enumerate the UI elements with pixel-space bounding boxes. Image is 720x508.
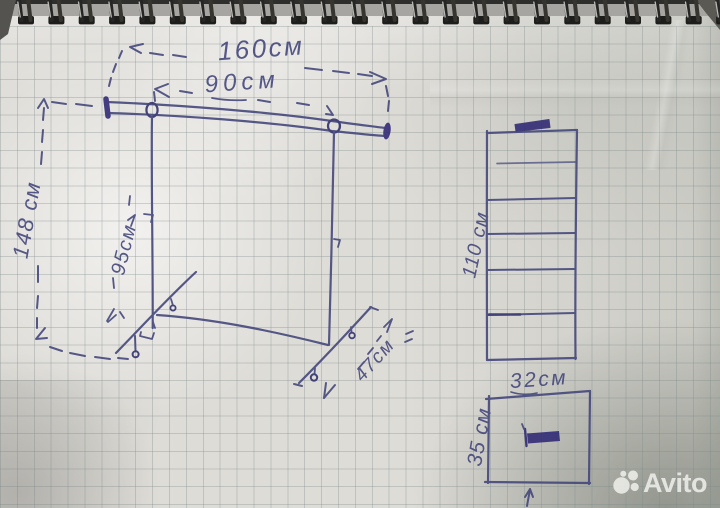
svg-text:Avito: Avito	[643, 468, 707, 498]
svg-text:148 см: 148 см	[8, 179, 46, 260]
svg-text:35 см: 35 см	[463, 406, 496, 468]
svg-text:47см: 47см	[350, 335, 399, 386]
svg-text:95см: 95см	[107, 222, 141, 278]
svg-text:32см: 32см	[509, 366, 569, 393]
svg-text:160см: 160см	[217, 30, 306, 66]
svg-text:90см: 90см	[204, 66, 281, 98]
